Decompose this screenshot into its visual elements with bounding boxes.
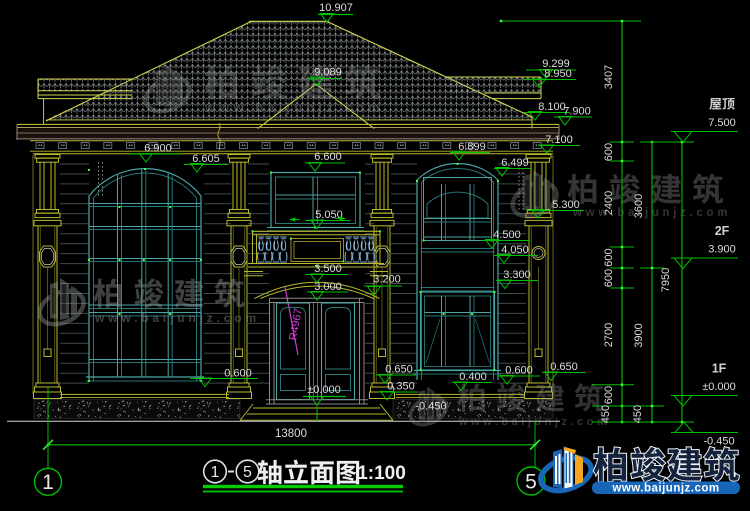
svg-text:5.050: 5.050 <box>315 209 343 221</box>
svg-text:6.600: 6.600 <box>314 151 342 163</box>
svg-text:www.baijunjz.com: www.baijunjz.com <box>204 100 384 115</box>
svg-text:-0.450: -0.450 <box>415 401 446 413</box>
svg-text:1: 1 <box>42 471 54 494</box>
svg-text:5.300: 5.300 <box>552 199 580 211</box>
svg-text:www.baijunjz.com: www.baijunjz.com <box>611 483 719 495</box>
svg-text:www.baijunjz.com: www.baijunjz.com <box>94 311 260 325</box>
svg-text:1: 1 <box>211 464 220 481</box>
svg-text:7.900: 7.900 <box>563 106 591 118</box>
svg-text:8.950: 8.950 <box>544 68 572 80</box>
svg-text:3.200: 3.200 <box>373 274 401 286</box>
svg-text:3900: 3900 <box>633 323 645 347</box>
svg-text:6.900: 6.900 <box>144 143 172 155</box>
svg-text:3407: 3407 <box>603 65 615 89</box>
svg-text:8.100: 8.100 <box>538 101 566 113</box>
svg-text:2400: 2400 <box>603 191 615 215</box>
svg-text:-0.450: -0.450 <box>703 436 734 448</box>
svg-text:2700: 2700 <box>603 323 615 347</box>
svg-text:www.baijunjz.com: www.baijunjz.com <box>458 416 610 428</box>
svg-text:±0.000: ±0.000 <box>307 384 341 396</box>
svg-text:0.600: 0.600 <box>505 365 533 377</box>
svg-text:0.650: 0.650 <box>385 364 413 376</box>
svg-text:0.650: 0.650 <box>550 361 578 373</box>
svg-text:±0.000: ±0.000 <box>702 381 736 393</box>
svg-text:5: 5 <box>525 471 537 494</box>
svg-text:3.300: 3.300 <box>503 269 531 281</box>
svg-text:7950: 7950 <box>660 268 672 292</box>
svg-text:0.400: 0.400 <box>459 371 487 383</box>
svg-text:10.907: 10.907 <box>319 2 353 14</box>
svg-text:3.500: 3.500 <box>314 263 342 275</box>
svg-text:1F: 1F <box>712 362 727 376</box>
svg-text:2F: 2F <box>715 224 730 238</box>
svg-text:13800: 13800 <box>275 428 307 440</box>
svg-text:7.100: 7.100 <box>545 134 573 146</box>
svg-text:600: 600 <box>603 143 615 161</box>
svg-text:0.600: 0.600 <box>224 368 252 380</box>
svg-text:600: 600 <box>603 248 615 266</box>
svg-text:1:100: 1:100 <box>357 463 406 484</box>
svg-text:600: 600 <box>603 386 615 404</box>
svg-text:0.350: 0.350 <box>387 381 415 393</box>
svg-text:600: 600 <box>603 269 615 287</box>
svg-text:3.900: 3.900 <box>708 244 736 256</box>
svg-text:450: 450 <box>632 405 644 423</box>
svg-text:450: 450 <box>600 405 612 423</box>
svg-text:7.500: 7.500 <box>708 117 736 129</box>
svg-text:5: 5 <box>243 464 252 481</box>
svg-text:3600: 3600 <box>633 194 645 218</box>
